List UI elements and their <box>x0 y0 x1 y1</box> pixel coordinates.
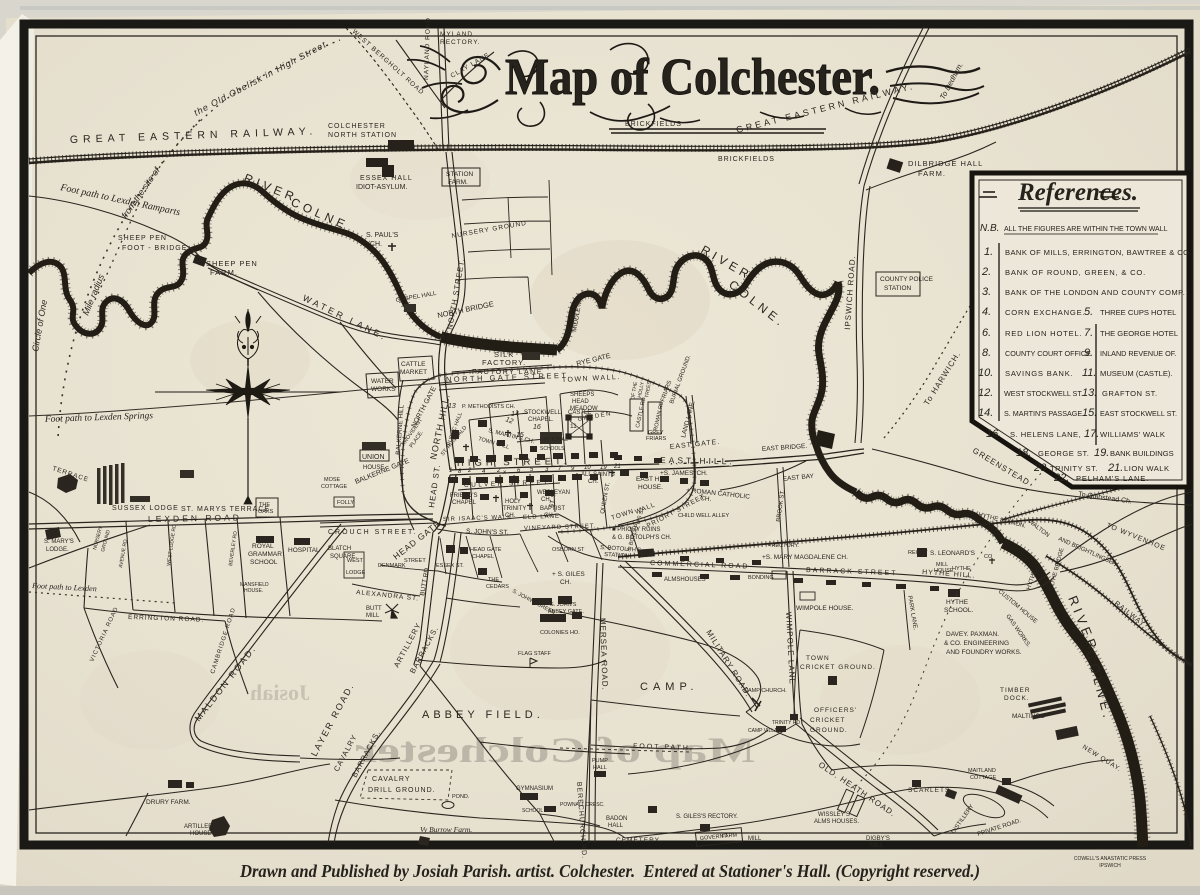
svg-text:MUSEUM (CASTLE).: MUSEUM (CASTLE). <box>1100 369 1173 378</box>
svg-text:5.: 5. <box>1084 306 1093 318</box>
svg-text:1: 1 <box>449 468 452 474</box>
svg-text:S. PAUL'S: S. PAUL'S <box>366 232 399 239</box>
svg-text:SQUARE.: SQUARE. <box>330 554 357 560</box>
svg-text:EAST STOCKWELL ST.: EAST STOCKWELL ST. <box>1100 409 1177 418</box>
svg-text:& CO. ENGINEERING: & CO. ENGINEERING <box>944 640 1009 647</box>
svg-text:CH.: CH. <box>541 497 552 503</box>
svg-text:MILL: MILL <box>870 843 884 849</box>
svg-text:DOCK.: DOCK. <box>1004 695 1030 702</box>
svg-text:GRAMMAR: GRAMMAR <box>248 551 282 558</box>
svg-text:Josiah: Josiah <box>250 680 310 705</box>
svg-text:TOWN: TOWN <box>806 655 830 662</box>
svg-text:HOUSE: HOUSE <box>934 568 954 574</box>
svg-text:ROYAL: ROYAL <box>252 543 274 550</box>
svg-text:+S. MARY MAGDALENE CH.: +S. MARY MAGDALENE CH. <box>762 554 848 561</box>
svg-text:WIMPOLE HOUSE.: WIMPOLE HOUSE. <box>796 605 854 612</box>
svg-text:S. GILES'S RECTORY.: S. GILES'S RECTORY. <box>676 814 738 820</box>
svg-text:FLAG STAFF: FLAG STAFF <box>518 651 552 657</box>
svg-text:FRIARS: FRIARS <box>646 436 667 442</box>
svg-text:CATTLE: CATTLE <box>401 361 426 368</box>
svg-text:S. MARTIN'S PASSAGE: S. MARTIN'S PASSAGE <box>1004 409 1082 418</box>
svg-text:Vy Burrow Farm.: Vy Burrow Farm. <box>420 825 472 834</box>
svg-text:11: 11 <box>570 423 577 430</box>
svg-text:GYMNASIUM: GYMNASIUM <box>516 786 553 792</box>
svg-text:RECTORY.: RECTORY. <box>440 39 481 46</box>
svg-text:CAMP.: CAMP. <box>640 681 698 693</box>
svg-text:BRICKFIELDS: BRICKFIELDS <box>625 121 682 128</box>
svg-text:THREE CUPS HOTEL: THREE CUPS HOTEL <box>1100 308 1176 317</box>
svg-text:INLAND REVENUE OF.: INLAND REVENUE OF. <box>1100 349 1176 358</box>
svg-text:HOSPITAL: HOSPITAL <box>288 547 320 554</box>
svg-text:11.: 11. <box>1082 367 1096 379</box>
svg-text:MILL: MILL <box>366 613 380 619</box>
svg-text:MYLAND: MYLAND <box>440 31 473 38</box>
svg-text:NORTH STATION: NORTH STATION <box>328 132 397 139</box>
svg-text:BUTT: BUTT <box>366 606 382 612</box>
svg-text:SCHOOLS: SCHOOLS <box>540 446 565 452</box>
svg-text:HOUSE.: HOUSE. <box>244 588 263 594</box>
svg-text:COLONIES HO.: COLONIES HO. <box>540 630 580 636</box>
svg-text:BAPTIST: BAPTIST <box>540 506 565 512</box>
svg-text:FACTORY.: FACTORY. <box>482 358 526 367</box>
svg-text:+ S. GILES: + S. GILES <box>552 571 585 578</box>
svg-text:HYTHE: HYTHE <box>952 566 971 572</box>
svg-text:SHEEP PEN: SHEEP PEN <box>118 235 167 242</box>
svg-text:CH.: CH. <box>560 579 571 586</box>
svg-text:10: 10 <box>584 465 591 471</box>
svg-text:17.: 17. <box>1084 428 1099 440</box>
svg-text:4.: 4. <box>982 306 991 318</box>
svg-text:MILL: MILL <box>748 836 762 842</box>
svg-text:CEMETERY.: CEMETERY. <box>616 837 662 844</box>
svg-text:CHAPEL.: CHAPEL. <box>528 417 554 423</box>
svg-text:LODGE: LODGE <box>346 570 366 576</box>
svg-text:HYTHE: HYTHE <box>946 599 969 606</box>
svg-text:COWELL'S ANASTATIC PRESS: COWELL'S ANASTATIC PRESS <box>1074 856 1147 862</box>
svg-text:• RECTORY.: • RECTORY. <box>768 543 799 549</box>
svg-text:+S. JAMES' CH.: +S. JAMES' CH. <box>660 470 708 477</box>
svg-text:CH.: CH. <box>370 241 382 248</box>
svg-text:16.: 16. <box>986 428 1001 440</box>
svg-text:8.: 8. <box>982 347 991 359</box>
svg-text:MARKET: MARKET <box>400 369 427 376</box>
svg-text:EAST HILL.: EAST HILL. <box>660 455 735 466</box>
svg-text:IDIOT-ASYLUM.: IDIOT-ASYLUM. <box>356 184 407 191</box>
svg-text:GROUND.: GROUND. <box>810 727 848 734</box>
svg-text:WATER: WATER <box>371 378 394 385</box>
svg-text:FARM.: FARM. <box>210 268 238 277</box>
svg-text:15: 15 <box>516 432 524 439</box>
svg-text:LION WALK: LION WALK <box>1124 464 1170 473</box>
svg-text:BANK OF ROUND, GREEN, & CO.: BANK OF ROUND, GREEN, & CO. <box>1005 268 1146 277</box>
svg-text:Map of Colchester.: Map of Colchester. <box>505 49 880 106</box>
svg-text:PUMP: PUMP <box>592 758 608 764</box>
svg-text:DAVEY. PAXMAN.: DAVEY. PAXMAN. <box>946 631 999 638</box>
svg-text:2: 2 <box>467 468 472 474</box>
svg-text:ALMSHOUSES: ALMSHOUSES <box>664 577 706 583</box>
svg-text:BADON: BADON <box>606 816 627 822</box>
svg-text:S. LEONARD'S: S. LEONARD'S <box>930 550 976 557</box>
svg-text:COLCHESTER: COLCHESTER <box>328 123 386 130</box>
svg-text:S. HELENS LANE,: S. HELENS LANE, <box>1010 430 1081 439</box>
svg-text:21: 21 <box>613 464 621 470</box>
svg-text:14: 14 <box>511 411 519 418</box>
svg-text:WORKS: WORKS <box>371 386 396 393</box>
svg-text:P. METHODISTS CH.: P. METHODISTS CH. <box>462 404 516 410</box>
svg-text:21.: 21. <box>1107 462 1123 474</box>
svg-text:CEDARS: CEDARS <box>486 584 509 590</box>
svg-text:CHAPEL: CHAPEL <box>472 554 494 560</box>
svg-text:CRICKET GROUND.: CRICKET GROUND. <box>800 664 876 671</box>
svg-text:DIGBY'S: DIGBY'S <box>866 836 890 842</box>
svg-text:19: 19 <box>600 465 607 471</box>
svg-text:TRINITY: TRINITY <box>503 506 526 512</box>
svg-text:WILLIAMS' WALK: WILLIAMS' WALK <box>1100 430 1165 439</box>
svg-text:BRICKFIELDS: BRICKFIELDS <box>718 156 775 163</box>
svg-text:STATION: STATION <box>446 171 474 178</box>
svg-text:STREET: STREET <box>404 558 426 564</box>
svg-text:FOOT - BRIDGE: FOOT - BRIDGE <box>122 245 187 252</box>
svg-text:AND FOUNDRY WORKS.: AND FOUNDRY WORKS. <box>946 649 1022 656</box>
svg-text:CORN EXCHANGE.: CORN EXCHANGE. <box>1005 308 1085 317</box>
svg-text:EAST HILL: EAST HILL <box>636 476 669 483</box>
svg-text:SCHOOL: SCHOOL <box>522 808 543 814</box>
svg-text:UNION: UNION <box>362 454 385 461</box>
svg-text:CH.: CH. <box>505 513 516 519</box>
svg-text:CRICKET: CRICKET <box>810 717 846 724</box>
svg-text:GEORGE ST.: GEORGE ST. <box>1038 449 1089 458</box>
svg-text:Drawn and Published by Josiah: Drawn and Published by Josiah Parish. ar… <box>239 861 980 881</box>
svg-text:& G. BOTOLPH'S CH.: & G. BOTOLPH'S CH. <box>612 535 672 541</box>
svg-text:SUSSEX LODGE: SUSSEX LODGE <box>112 505 179 512</box>
svg-text:THE GEORGE HOTEL: THE GEORGE HOTEL <box>1100 329 1178 338</box>
svg-text:3.: 3. <box>982 286 991 298</box>
svg-text:HOUSE.: HOUSE. <box>638 484 663 491</box>
svg-text:DILBRIDGE HALL: DILBRIDGE HALL <box>908 159 983 168</box>
svg-text:2: 2 <box>496 468 501 474</box>
svg-text:GRAFTON ST.: GRAFTON ST. <box>1102 389 1158 398</box>
svg-text:WEST STOCKWELL ST.: WEST STOCKWELL ST. <box>1004 389 1083 398</box>
svg-text:OAKS: OAKS <box>258 509 274 515</box>
svg-text:10.: 10. <box>978 367 993 379</box>
svg-text:HEAD: HEAD <box>572 399 589 405</box>
svg-text:22.: 22. <box>1053 472 1069 484</box>
svg-text:ALL THE FIGURES ARE WITHIN THE: ALL THE FIGURES ARE WITHIN THE TOWN WALL <box>1004 226 1168 233</box>
svg-text:Map of Colchester: Map of Colchester <box>355 730 755 770</box>
svg-text:18.: 18. <box>1016 447 1031 459</box>
svg-text:CAVALRY: CAVALRY <box>372 776 411 783</box>
svg-text:HOLY: HOLY <box>505 499 521 505</box>
svg-text:S. MARY'S: S. MARY'S <box>44 539 74 545</box>
svg-text:RED LION HOTEL.: RED LION HOTEL. <box>1005 329 1082 338</box>
svg-text:CHAPEL: CHAPEL <box>452 500 477 506</box>
svg-text:ST. MARYS TERRACE: ST. MARYS TERRACE <box>181 506 270 513</box>
svg-text:SHEEPS: SHEEPS <box>570 392 594 398</box>
svg-text:THE: THE <box>488 577 499 583</box>
svg-text:SCHOOL: SCHOOL <box>250 559 278 566</box>
svg-text:WESLEYAN: WESLEYAN <box>537 490 570 496</box>
svg-text:SAVINGS BANK.: SAVINGS BANK. <box>1005 369 1074 378</box>
svg-text:CHILD WELL ALLEY: CHILD WELL ALLEY <box>678 513 729 519</box>
svg-text:FARM.: FARM. <box>448 179 468 186</box>
svg-text:BANK BUILDINGS: BANK BUILDINGS <box>1110 449 1174 458</box>
svg-text:PELHAM'S LANE.: PELHAM'S LANE. <box>1076 474 1149 483</box>
svg-text:TRINITY RD: TRINITY RD <box>772 720 800 726</box>
svg-text:COTTAGE: COTTAGE <box>321 484 348 490</box>
svg-text:LEXDEN ROAD: LEXDEN ROAD <box>148 512 242 524</box>
svg-text:13: 13 <box>448 403 456 410</box>
svg-text:FACTORY LANE: FACTORY LANE <box>472 369 543 376</box>
svg-text:STOCKWELL: STOCKWELL <box>524 410 562 416</box>
svg-text:HALL: HALL <box>608 823 624 829</box>
svg-text:ESSEX ST.: ESSEX ST. <box>436 563 464 569</box>
svg-text:14.: 14. <box>978 407 993 419</box>
svg-text:OFFICERS': OFFICERS' <box>814 707 857 714</box>
svg-text:STATION: STATION <box>884 285 912 292</box>
svg-text:IPSWICH: IPSWICH <box>1099 863 1121 869</box>
svg-text:BANK OF MILLS, ERRINGTON, BAWT: BANK OF MILLS, ERRINGTON, BAWTREE & CO. <box>1005 248 1192 257</box>
svg-text:HOUSE: HOUSE <box>363 465 384 471</box>
svg-text:DRILL GROUND.: DRILL GROUND. <box>368 787 436 794</box>
svg-text:LODGE.: LODGE. <box>46 547 69 553</box>
svg-text:S. JOHN'S ST.: S. JOHN'S ST. <box>466 528 509 536</box>
svg-text:POWNALL CRESC.: POWNALL CRESC. <box>560 802 605 808</box>
svg-text:ALMS HOUSES.: ALMS HOUSES. <box>814 819 859 825</box>
svg-text:FRIEND'S: FRIEND'S <box>450 493 477 499</box>
svg-text:MOSE: MOSE <box>324 477 341 483</box>
svg-text:ABBEY FIELD.: ABBEY FIELD. <box>422 709 544 721</box>
svg-text:CAMP CHURCH.: CAMP CHURCH. <box>744 688 787 694</box>
svg-text:HEAD GATE: HEAD GATE <box>470 547 502 553</box>
svg-text:COUNTY POLICE: COUNTY POLICE <box>880 276 934 283</box>
svg-text:CH.: CH. <box>588 479 599 485</box>
svg-text:7.: 7. <box>1084 327 1093 339</box>
svg-text:SHEEP PEN: SHEEP PEN <box>206 259 258 268</box>
svg-text:BONDING: BONDING <box>748 575 774 581</box>
svg-text:FOLLY: FOLLY <box>337 500 354 506</box>
svg-text:19.: 19. <box>1094 447 1109 459</box>
svg-text:DRURY FARM.: DRURY FARM. <box>146 799 191 806</box>
svg-text:POND.: POND. <box>452 794 470 800</box>
svg-text:MEADOW: MEADOW <box>570 406 598 412</box>
svg-text:13.: 13. <box>1082 387 1097 399</box>
svg-text:16: 16 <box>533 424 541 431</box>
svg-text:BLATCH: BLATCH <box>328 546 351 552</box>
svg-text:THE: THE <box>259 502 270 508</box>
svg-text:2.: 2. <box>981 266 991 278</box>
svg-text:12.: 12. <box>978 387 993 399</box>
svg-text:SCARLETS: SCARLETS <box>908 787 950 794</box>
svg-text:NATIONAL: NATIONAL <box>541 437 568 443</box>
svg-text:N.B.: N.B. <box>980 223 999 234</box>
svg-text:References.: References. <box>1017 179 1138 206</box>
svg-text:HOUSE: HOUSE <box>190 831 211 837</box>
svg-text:HALL: HALL <box>593 765 607 771</box>
svg-text:COUNTY COURT OFFICE: COUNTY COURT OFFICE <box>1005 349 1091 358</box>
svg-text:FARM.: FARM. <box>918 169 946 178</box>
svg-text:ESSEX HALL: ESSEX HALL <box>360 175 413 182</box>
svg-text:CH.: CH. <box>544 513 555 519</box>
svg-text:9.: 9. <box>1084 347 1093 359</box>
svg-text:15.: 15. <box>1082 407 1097 419</box>
svg-text:TIMBER: TIMBER <box>1000 687 1031 694</box>
svg-text:SCHOOL.: SCHOOL. <box>944 607 973 614</box>
svg-text:6.: 6. <box>982 327 991 339</box>
svg-text:1.: 1. <box>984 246 993 258</box>
svg-text:20: 20 <box>1033 462 1047 474</box>
svg-text:BANK OF THE LONDON AND COUNTY: BANK OF THE LONDON AND COUNTY COMP. <box>1005 288 1185 297</box>
